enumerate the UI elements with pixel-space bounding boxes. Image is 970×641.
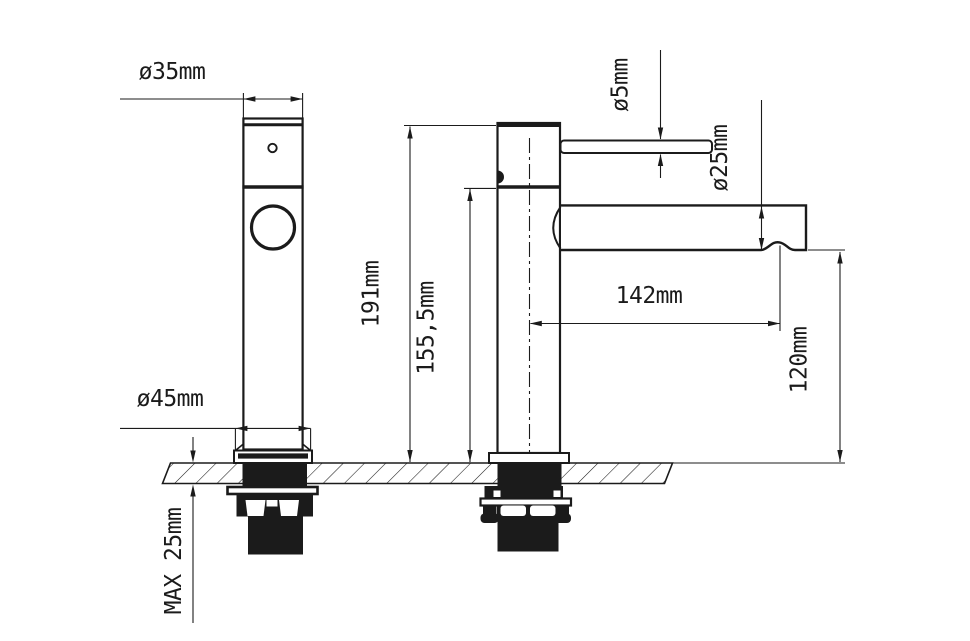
arrowhead [190, 485, 195, 497]
arrowhead [467, 189, 472, 201]
deck-hatched-section [163, 463, 673, 484]
side-spout-outline [561, 205, 806, 250]
technical-drawing-page: ø35mm ø45mm 191mm 155,5mm [0, 0, 970, 641]
arrowhead [291, 96, 303, 101]
front-view [228, 119, 318, 555]
arrowhead [299, 426, 311, 431]
dia25-label: ø25mm [707, 125, 733, 192]
side-handle-rod [561, 141, 713, 154]
arrowhead [235, 426, 247, 431]
arrowhead [467, 450, 472, 462]
dimension-155-5: 155,5mm [414, 188, 497, 462]
arrowhead [658, 128, 663, 140]
dimension-annotations: ø35mm ø45mm 191mm 155,5mm [120, 50, 845, 623]
side-clamp-half-left [501, 506, 527, 517]
max25-label: MAX 25mm [161, 508, 187, 615]
w142-label: 142mm [616, 283, 683, 309]
side-base-flange [489, 453, 569, 463]
arrowhead [768, 321, 780, 326]
arrowhead [837, 450, 842, 462]
side-threaded-rod [498, 518, 559, 552]
side-bracket-slot-left [494, 491, 501, 498]
dimension-142: 142mm [530, 246, 780, 332]
side-bracket-slot-right [554, 491, 561, 498]
faucet-dimension-drawing: ø35mm ø45mm 191mm 155,5mm [0, 0, 970, 641]
arrowhead [407, 127, 412, 139]
arrowhead [658, 154, 663, 166]
arrowhead [407, 450, 412, 462]
front-threaded-shank [243, 463, 308, 488]
side-stud-foot-left [481, 514, 499, 524]
dimension-dia35: ø35mm [120, 59, 303, 118]
dia5-label: ø5mm [608, 58, 634, 111]
h191-label: 191mm [359, 261, 385, 328]
front-spout-circle [252, 206, 295, 249]
dimension-120: 120mm [787, 250, 846, 462]
front-threaded-rod [248, 517, 303, 555]
arrowhead [837, 252, 842, 264]
dia35-label: ø35mm [139, 59, 206, 85]
side-clamp-half-right [530, 506, 556, 517]
front-nut-facet-right [279, 500, 299, 516]
front-body-outline [243, 119, 302, 450]
front-mounting-washer [228, 487, 318, 494]
h120-label: 120mm [787, 327, 813, 394]
arrowhead [190, 451, 195, 463]
front-handle-pin-hole [268, 144, 276, 152]
h155-label: 155,5mm [414, 281, 440, 374]
dimension-dia5: ø5mm [608, 50, 664, 178]
side-mounting-plate [481, 499, 572, 506]
side-body-outline [498, 123, 561, 453]
arrowhead [243, 96, 255, 101]
dia45-label: ø45mm [137, 386, 204, 412]
front-flange-gasket [238, 453, 308, 458]
front-nut-facet-center [267, 500, 278, 507]
side-threaded-shank [498, 463, 562, 486]
front-nut-facet-left [246, 500, 266, 516]
side-view [481, 123, 807, 552]
